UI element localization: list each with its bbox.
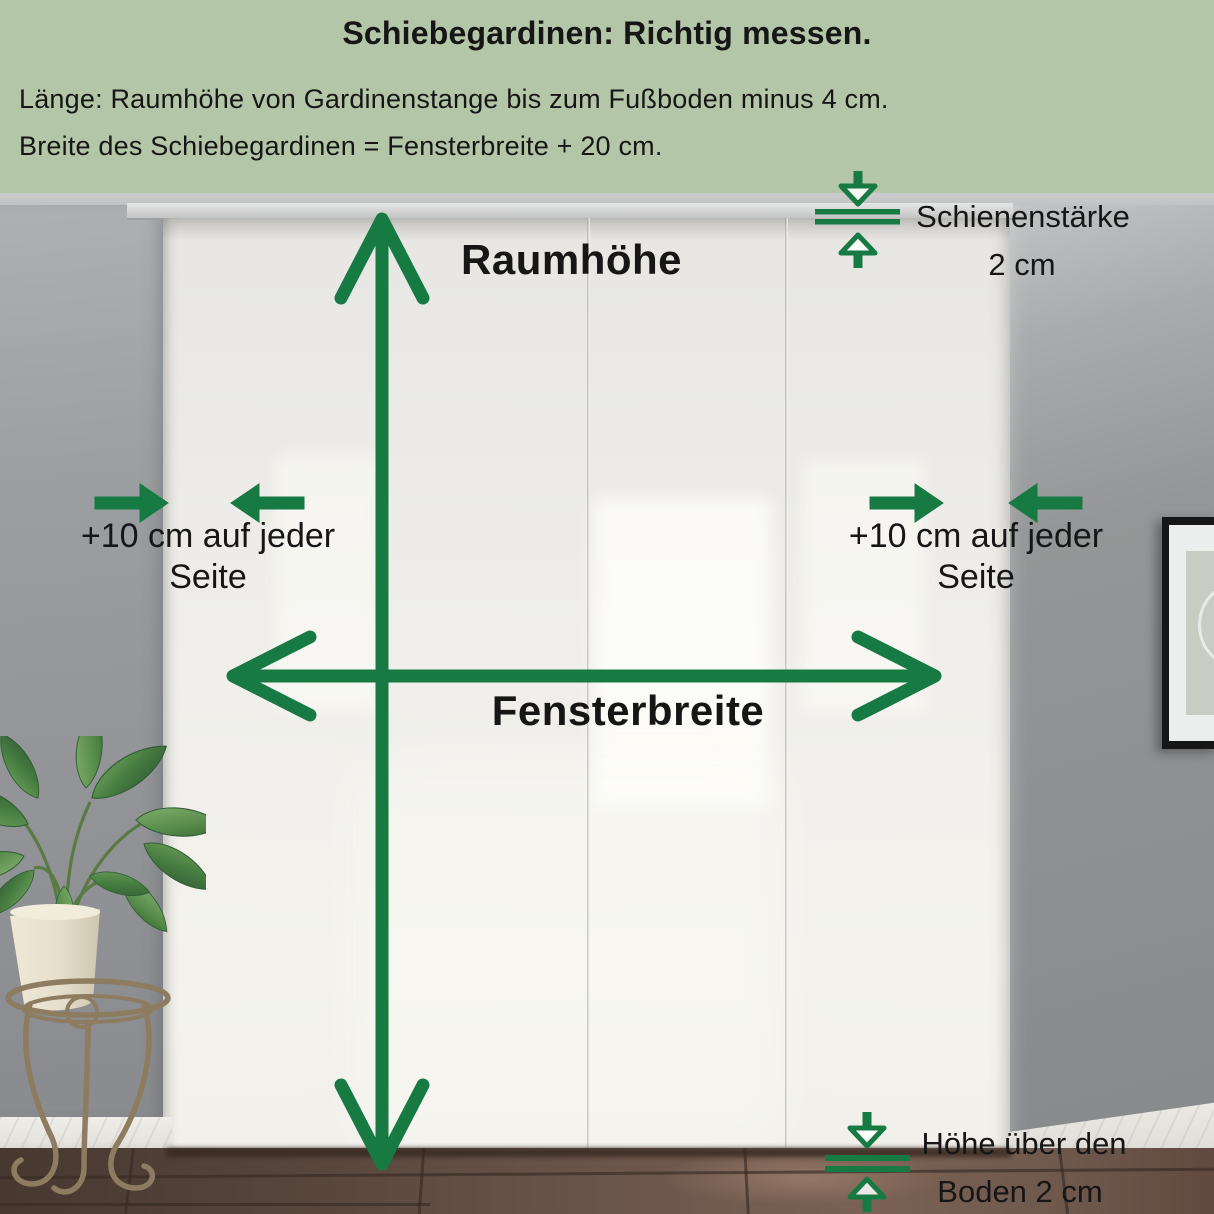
room-height-label: Raumhöhe — [461, 236, 682, 284]
sliding-curtain-panels — [163, 218, 1010, 1152]
rail-thickness-label: Schienenstärke — [916, 201, 1130, 232]
panel-seam — [379, 218, 382, 1152]
header-band: Schiebegardinen: Richtig messen. Länge: … — [0, 0, 1214, 193]
right-margin-label-line1: +10 cm auf jeder — [849, 516, 1103, 557]
right-margin-label-line2: Seite — [849, 557, 1103, 598]
plant-stand — [8, 981, 168, 1192]
window-width-label: Fensterbreite — [492, 687, 765, 735]
floor-clearance-label: Höhe über den — [921, 1128, 1126, 1159]
subtitle-width-formula: Breite des Schiebegardinen = Fensterbrei… — [19, 131, 663, 162]
wall-picture-frame — [1162, 517, 1214, 749]
panel-seam — [785, 218, 788, 1152]
left-margin-label-line2: Seite — [81, 557, 335, 598]
page-title: Schiebegardinen: Richtig messen. — [0, 15, 1214, 52]
subtitle-length-formula: Länge: Raumhöhe von Gardinenstange bis z… — [19, 84, 889, 115]
right-margin-label: +10 cm auf jeder Seite — [849, 516, 1103, 598]
window-light-glow — [353, 758, 783, 1148]
frame-mat — [1169, 525, 1214, 741]
curtain-floor-shadow — [166, 1148, 1011, 1157]
measurement-infographic: Schiebegardinen: Richtig messen. Länge: … — [0, 0, 1214, 1214]
floor-clearance-value: Boden 2 cm — [937, 1176, 1102, 1207]
rail-thickness-value: 2 cm — [988, 249, 1055, 280]
potted-plant — [0, 736, 206, 1214]
tile-grout-line — [743, 1148, 749, 1214]
left-margin-label: +10 cm auf jeder Seite — [81, 516, 335, 598]
panel-seam — [587, 218, 590, 1152]
frame-artwork — [1186, 551, 1214, 715]
left-margin-label-line1: +10 cm auf jeder — [81, 516, 335, 557]
